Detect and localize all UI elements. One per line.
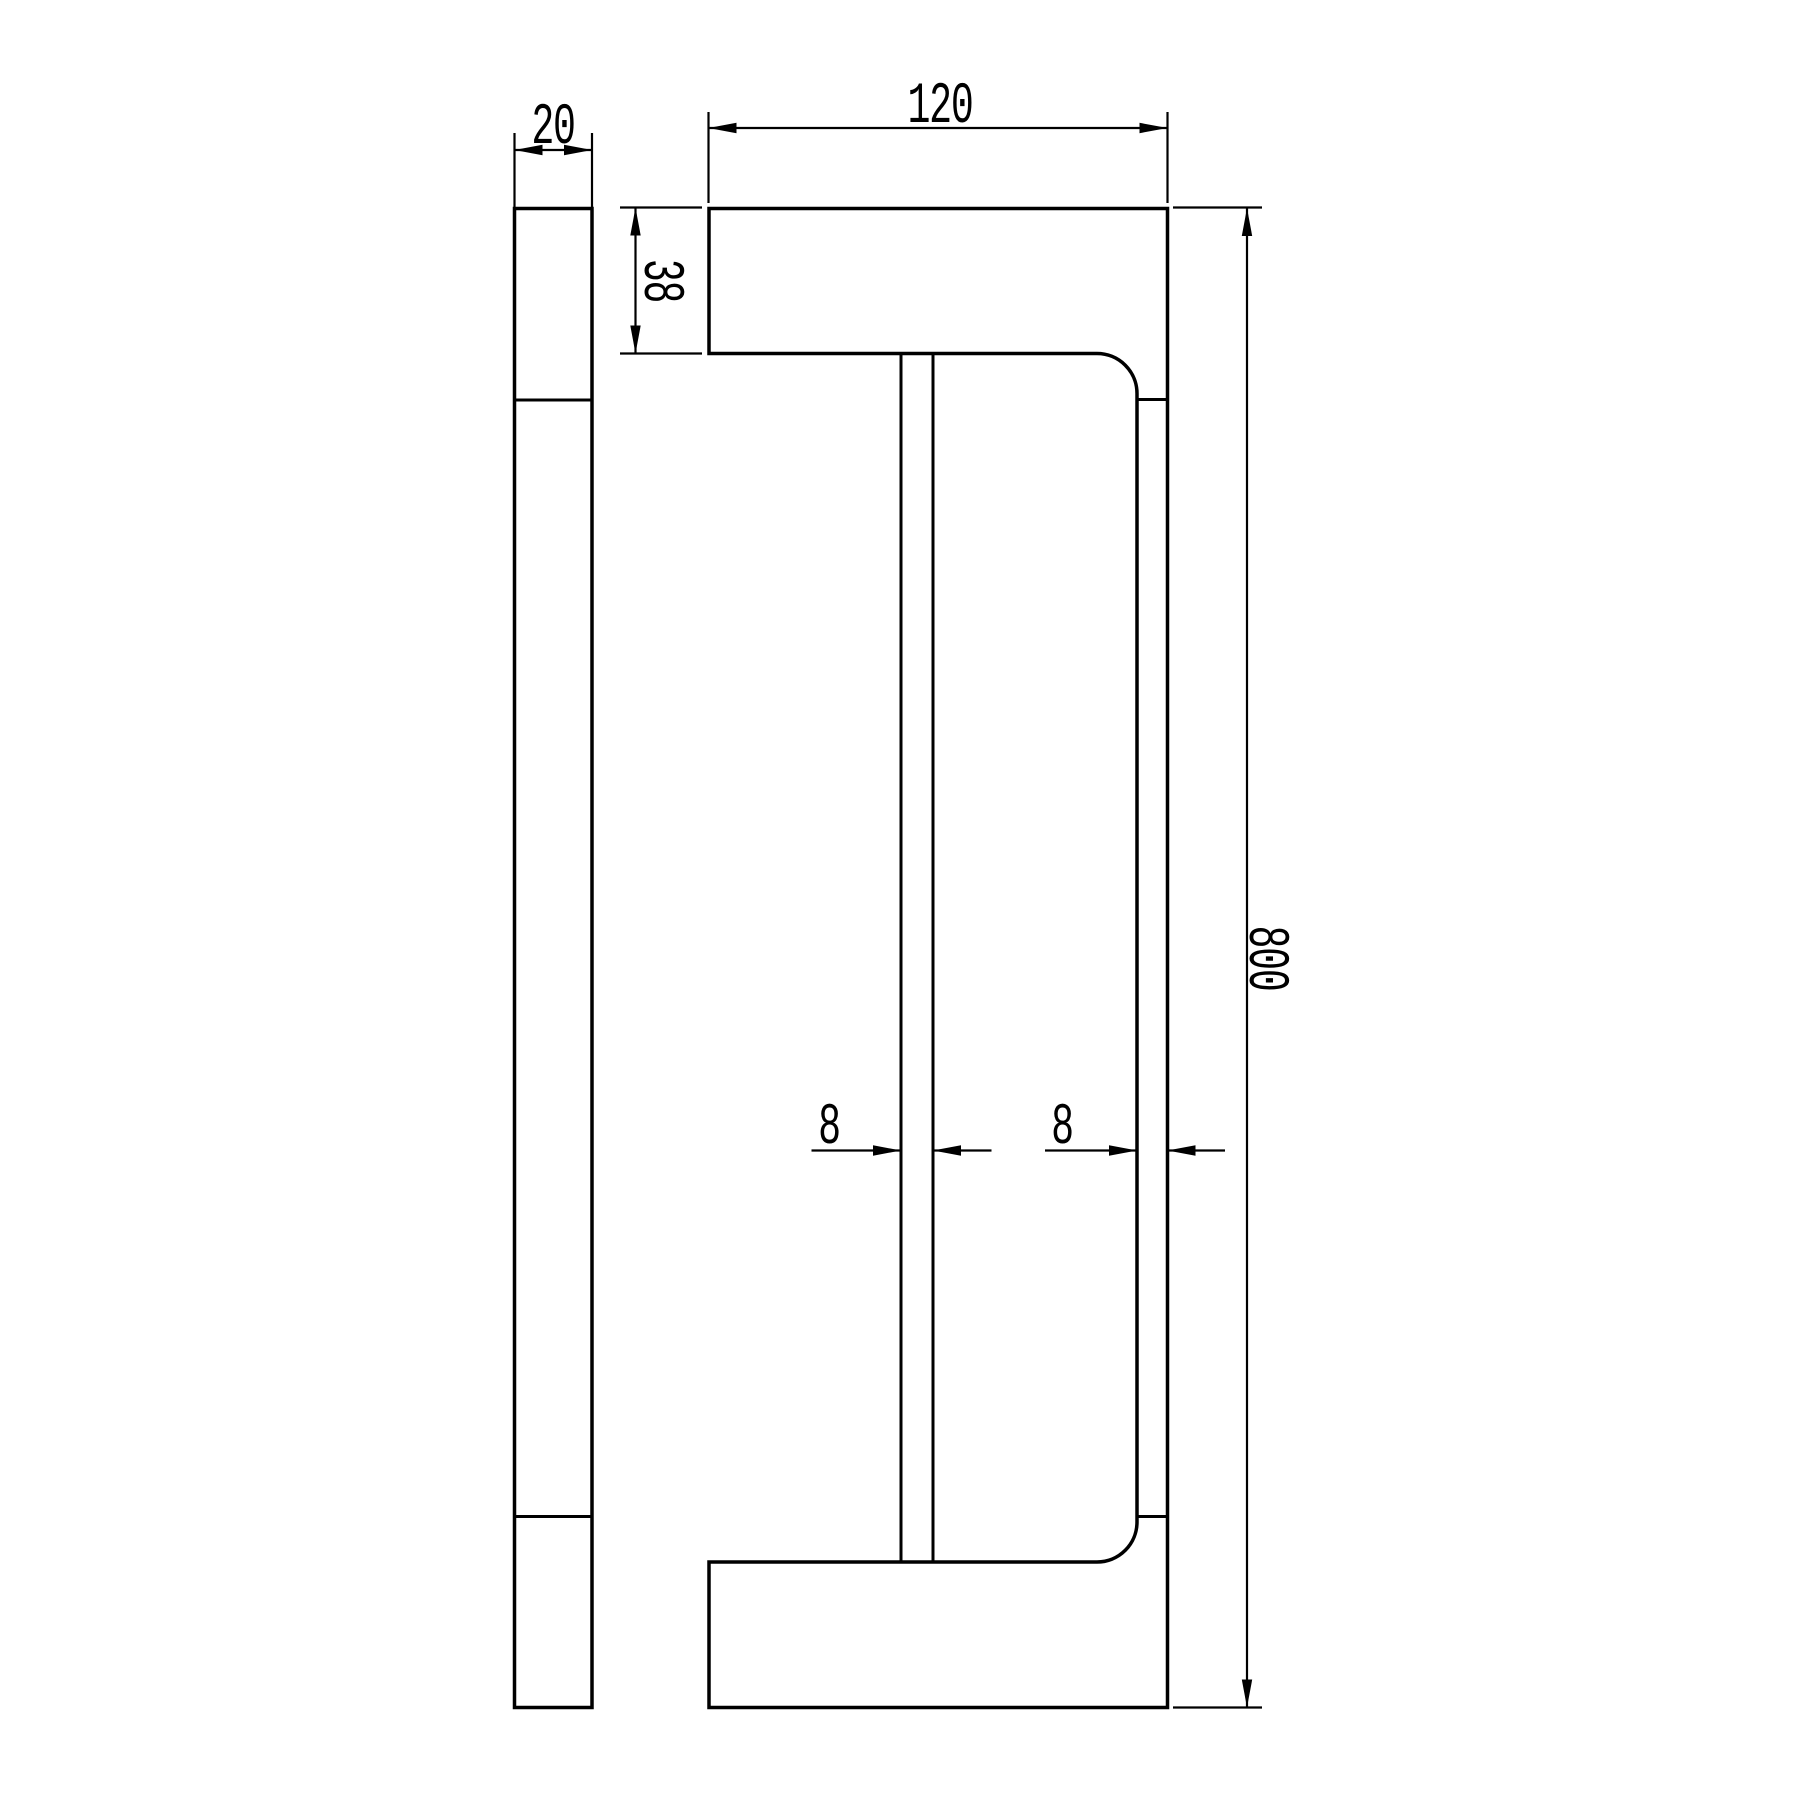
dimension-label-8-grip: 8 xyxy=(1051,1095,1073,1161)
technical-drawing-canvas: 20 120 38 800 xyxy=(0,0,1800,1800)
dimension-label-20: 20 xyxy=(531,95,574,161)
dimension-label-120: 120 xyxy=(908,74,973,140)
dimension-label-8-inner: 8 xyxy=(818,1095,840,1161)
pull-handle-dimension-drawing: 20 120 38 800 xyxy=(0,0,1800,1800)
dimension-label-800: 800 xyxy=(1232,926,1298,991)
dimension-label-38: 38 xyxy=(627,259,693,302)
